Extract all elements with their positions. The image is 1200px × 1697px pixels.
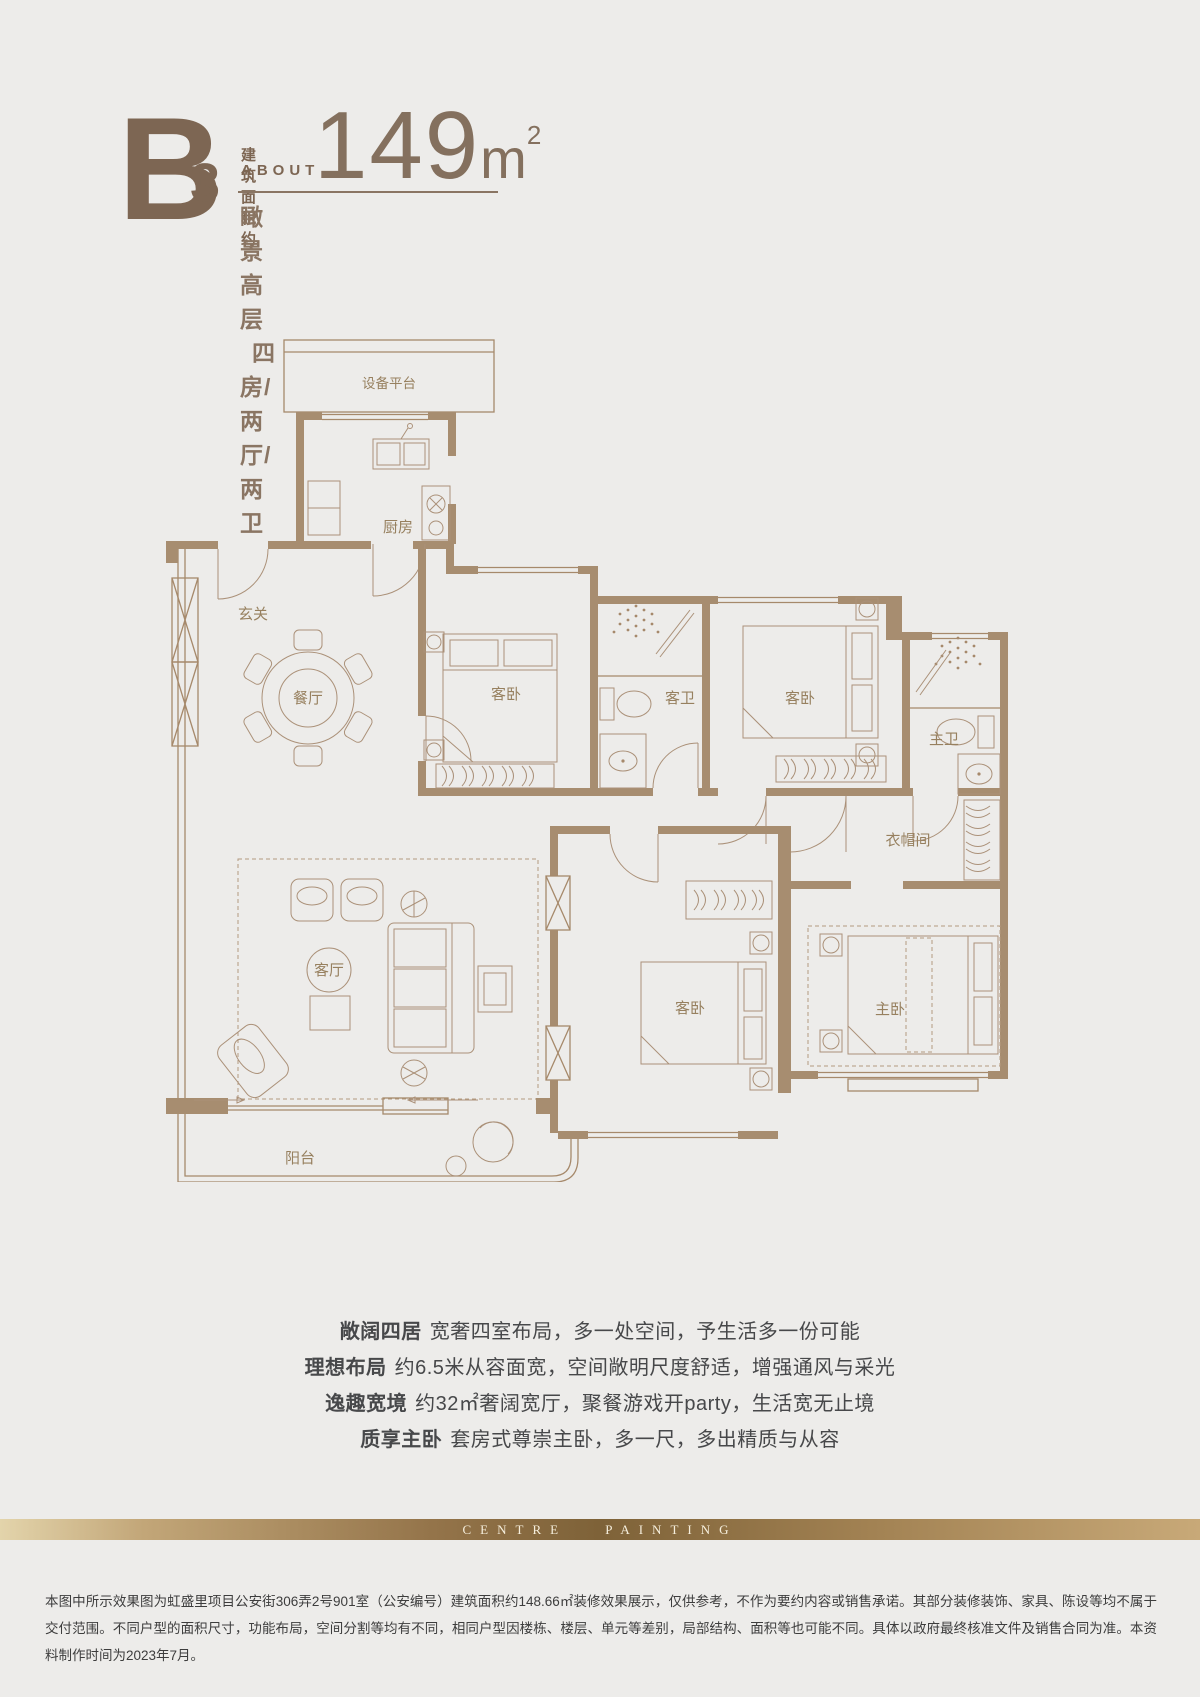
unit-number: 3 xyxy=(190,156,220,210)
bed-icon xyxy=(848,936,998,1054)
room-label-foyer: 玄关 xyxy=(238,606,268,623)
wardrobe-icon xyxy=(776,756,886,782)
header-divider xyxy=(238,191,498,193)
room-label-bedroom3: 客卧 xyxy=(675,1000,705,1017)
area-value: 149 m 2 xyxy=(314,98,541,194)
kitchen-sink-icon xyxy=(373,424,429,470)
feature-text: 套房式尊崇主卧，多一尺，多出精质与从容 xyxy=(450,1429,840,1451)
subtitle-type: 瞰景高层 xyxy=(240,204,264,332)
balcony xyxy=(178,1114,578,1182)
balcony-chair-icon xyxy=(473,1122,513,1162)
toilet-icon xyxy=(600,688,651,720)
floor-lamp-icon xyxy=(401,891,427,917)
room-label-master-bath: 主卫 xyxy=(929,731,959,748)
armchair-icon xyxy=(341,879,383,921)
feature-line: 质享主卧套房式尊崇主卧，多一尺，多出精质与从容 xyxy=(0,1430,1200,1451)
bedroom-row-walls xyxy=(418,549,1008,796)
room-label-guest-bath: 客卫 xyxy=(665,690,695,707)
feature-line: 敞阔四居宽奢四室布局，多一处空间，予生活多一份可能 xyxy=(0,1322,1200,1343)
area-number: 149 xyxy=(314,98,480,194)
floor-lamp-icon xyxy=(401,1060,427,1086)
chaise-icon xyxy=(214,1020,293,1101)
feature-list: 敞阔四居宽奢四室布局，多一处空间，予生活多一份可能 理想布局约6.5米从容面宽，… xyxy=(0,1322,1200,1466)
washbasin-icon xyxy=(600,734,646,788)
wardrobe-icon xyxy=(436,764,554,788)
wardrobe-icon xyxy=(686,881,772,919)
room-label-cloakroom: 衣帽间 xyxy=(885,832,930,849)
disclaimer-text: 本图中所示效果图为虹盛里项目公安街306弄2号901室（公安编号）建筑面积约14… xyxy=(45,1588,1157,1669)
balcony-slider xyxy=(166,1097,558,1114)
feature-lead: 理想布局 xyxy=(305,1357,387,1379)
area-superscript: 2 xyxy=(527,120,541,151)
fridge-icon xyxy=(308,481,340,535)
kitchen-door xyxy=(373,544,425,596)
brand-band: CENTRE PAINTING xyxy=(0,1519,1200,1540)
room-label-equipment: 设备平台 xyxy=(362,375,416,391)
feature-lead: 敞阔四居 xyxy=(340,1321,422,1343)
feature-line: 理想布局约6.5米从容面宽，空间敞明尺度舒适，增强通风与采光 xyxy=(0,1358,1200,1379)
feature-text: 约32㎡奢阔宽厅，聚餐游戏开party，生活宽无止境 xyxy=(415,1393,875,1415)
room-label-bedroom1: 客卧 xyxy=(491,686,521,703)
bedroom1 xyxy=(424,632,557,788)
sofa-icon xyxy=(388,923,474,1053)
floor-plan: 设备平台 厨房 玄关 餐厅 客卧 客卫 客卧 主卫 衣帽间 客厅 客卧 主卧 阳… xyxy=(158,336,1010,1182)
entry-door xyxy=(218,549,268,599)
clothes-rack-icon xyxy=(964,800,1000,880)
armchair-icon xyxy=(291,879,333,921)
room-label-dining: 餐厅 xyxy=(293,690,323,707)
feature-line: 逸趣宽境约32㎡奢阔宽厅，聚餐游戏开party，生活宽无止境 xyxy=(0,1394,1200,1415)
feature-text: 约6.5米从容面宽，空间敞明尺度舒适，增强通风与采光 xyxy=(395,1357,896,1379)
master-bedroom xyxy=(791,881,1008,1091)
feature-lead: 逸趣宽境 xyxy=(325,1393,407,1415)
room-label-balcony: 阳台 xyxy=(285,1150,315,1167)
room-label-living: 客厅 xyxy=(314,962,344,979)
coffee-table-icon xyxy=(307,948,351,1030)
bedroom3 xyxy=(558,826,791,1139)
area-unit: m xyxy=(480,131,527,187)
tv-console-icon xyxy=(478,966,512,1012)
north-walls xyxy=(166,541,1008,1079)
room-label-bedroom2: 客卧 xyxy=(785,690,815,707)
brand-band-text: CENTRE PAINTING xyxy=(463,1522,738,1537)
bedroom2 xyxy=(718,598,886,844)
kitchen-walls xyxy=(296,412,456,544)
feature-lead: 质享主卧 xyxy=(360,1429,442,1451)
room-label-master-bedroom: 主卧 xyxy=(875,1001,905,1018)
living-bedroom3-wall xyxy=(546,826,570,1133)
west-facade xyxy=(166,541,198,1098)
living-room xyxy=(214,859,538,1102)
bed-icon xyxy=(743,626,878,738)
stove-icon xyxy=(422,486,450,540)
room-label-kitchen: 厨房 xyxy=(383,519,413,536)
feature-text: 宽奢四室布局，多一处空间，予生活多一份可能 xyxy=(430,1321,861,1343)
poster-page: B 3 建筑面积约 ABOUT 149 m 2 瞰景高层 四房/两厅/两卫 xyxy=(0,0,1200,1697)
area-label-en: ABOUT xyxy=(241,162,319,179)
